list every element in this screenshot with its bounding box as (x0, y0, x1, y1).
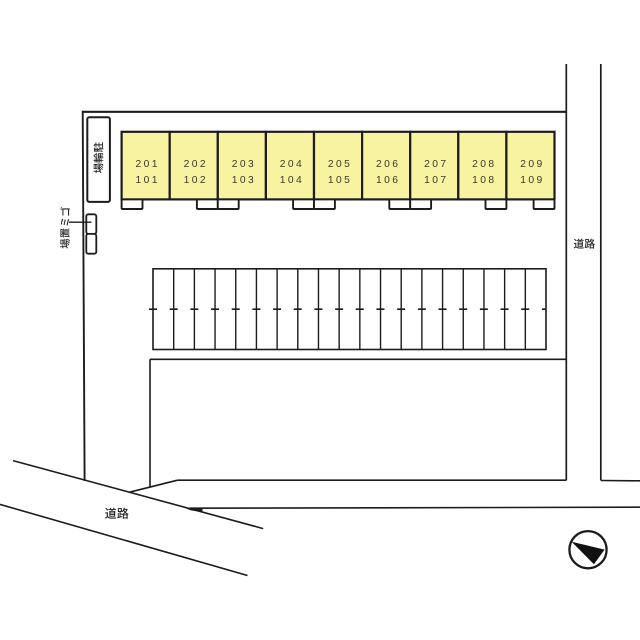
svg-text:202: 202 (184, 159, 208, 170)
svg-text:107: 107 (424, 175, 448, 186)
svg-text:203: 203 (232, 159, 256, 170)
svg-text:209: 209 (520, 159, 544, 170)
svg-text:106: 106 (376, 175, 400, 186)
svg-text:205: 205 (328, 159, 352, 170)
svg-text:105: 105 (328, 175, 352, 186)
svg-text:101: 101 (136, 175, 160, 186)
svg-text:103: 103 (232, 175, 256, 186)
svg-text:208: 208 (472, 159, 496, 170)
svg-text:109: 109 (520, 175, 544, 186)
svg-text:204: 204 (280, 159, 304, 170)
svg-text:102: 102 (184, 175, 208, 186)
svg-text:108: 108 (472, 175, 496, 186)
svg-text:201: 201 (136, 159, 160, 170)
svg-text:104: 104 (280, 175, 304, 186)
svg-text:207: 207 (424, 159, 448, 170)
svg-text:206: 206 (376, 159, 400, 170)
